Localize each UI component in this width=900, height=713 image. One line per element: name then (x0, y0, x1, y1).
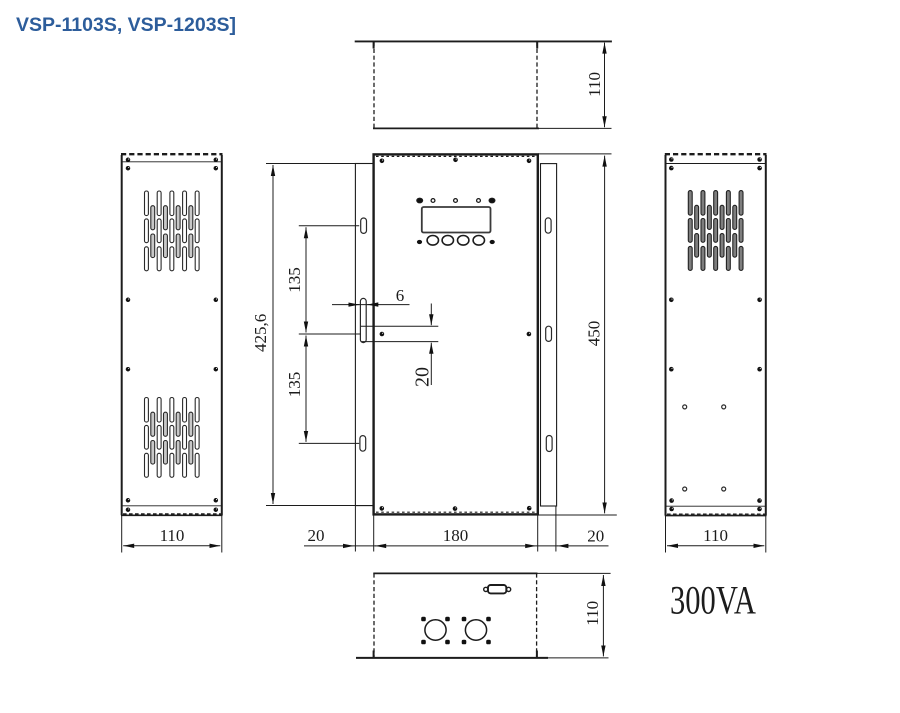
svg-text:110: 110 (703, 526, 728, 545)
svg-text:6: 6 (396, 286, 405, 305)
svg-text:180: 180 (443, 526, 469, 545)
svg-text:450: 450 (584, 321, 603, 347)
svg-text:110: 110 (160, 526, 185, 545)
svg-text:110: 110 (583, 601, 602, 626)
svg-text:300VA: 300VA (670, 578, 756, 623)
svg-text:135: 135 (285, 372, 304, 398)
svg-text:425,6: 425,6 (251, 314, 270, 352)
svg-text:VSP-1103S, VSP-1203S]: VSP-1103S, VSP-1203S] (16, 14, 236, 36)
svg-text:135: 135 (285, 267, 304, 293)
svg-text:20: 20 (587, 527, 604, 546)
svg-text:20: 20 (411, 367, 433, 387)
svg-text:20: 20 (308, 526, 325, 545)
svg-text:110: 110 (585, 72, 604, 97)
